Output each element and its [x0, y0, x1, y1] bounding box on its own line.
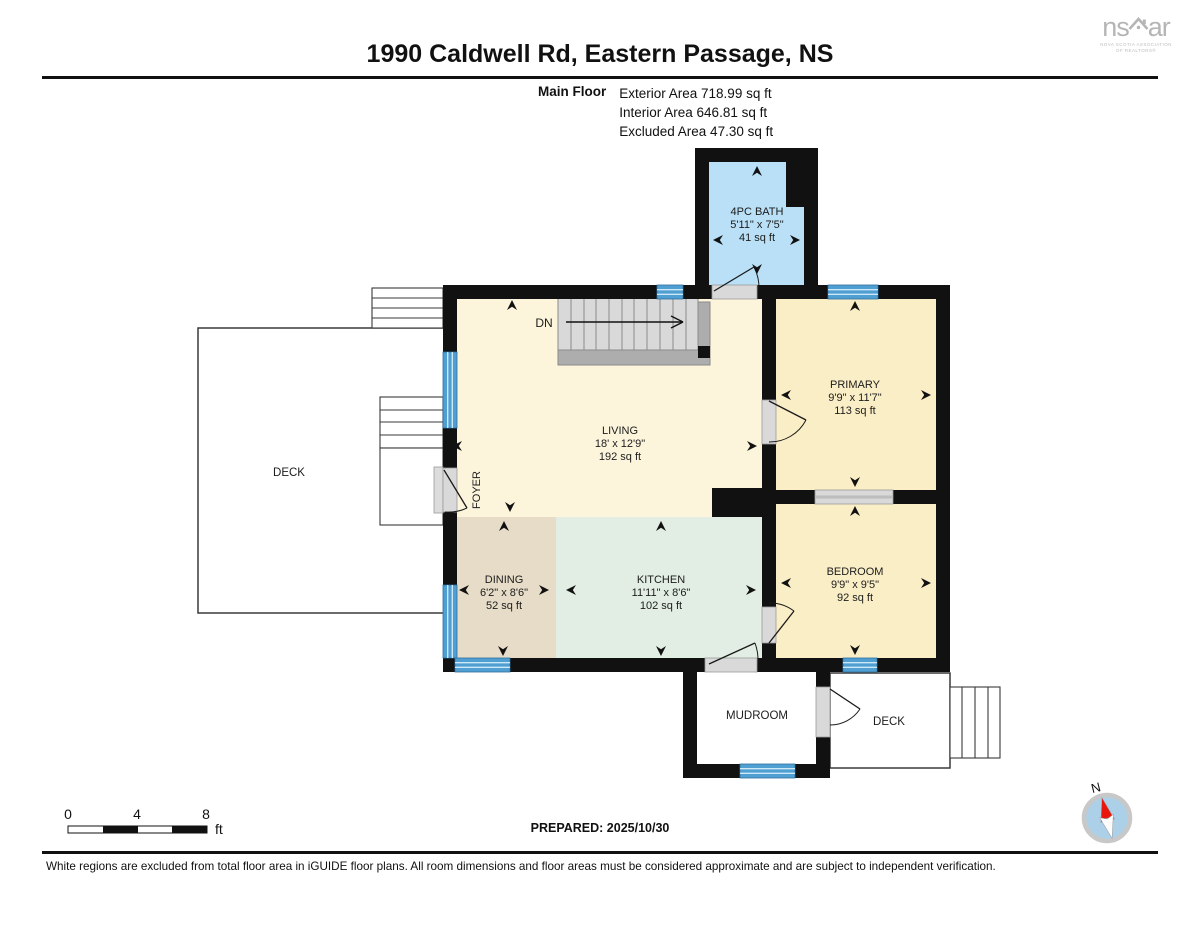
bath-name: 4PC BATH [731, 206, 784, 218]
sill-foyer-door [443, 468, 457, 512]
window-left-living [443, 352, 457, 428]
window-bedroom-bottom [843, 658, 877, 672]
footer-divider [42, 851, 1158, 854]
bedroom-dims: 9'9" x 9'5" [831, 579, 879, 591]
kitchen-area: 102 sq ft [640, 600, 682, 612]
deck-left [198, 288, 444, 613]
bath-area: 41 sq ft [739, 232, 775, 244]
deck-stairs-middle [380, 397, 443, 525]
dining-area: 52 sq ft [486, 600, 522, 612]
bedroom-name: BEDROOM [827, 566, 884, 578]
window-living-top [657, 285, 683, 299]
living-dims: 18' x 12'9" [595, 438, 645, 450]
kitchen-name: KITCHEN [637, 574, 685, 586]
dining-name: DINING [485, 574, 524, 586]
foyer-label: FOYER [471, 471, 483, 509]
floor-plan-drawing: DN [0, 0, 1200, 927]
deck-right-label: DECK [873, 716, 905, 728]
sill-kitchen-door [705, 658, 757, 672]
kitchen-dims: 11'11" x 8'6" [632, 587, 691, 599]
dining-dims: 6'2" x 8'6" [480, 587, 528, 599]
floor-plan-page: 1990 Caldwell Rd, Eastern Passage, NS ns… [0, 0, 1200, 927]
sill-bath-door [712, 285, 757, 299]
chimney-block [712, 488, 762, 517]
sill-mudroom-deck-door [816, 687, 830, 737]
sill-primary-door [762, 400, 776, 444]
bath-corner-notch [786, 162, 804, 207]
window-primary-top [828, 285, 878, 299]
bath-dims: 5'11" x 7'5" [730, 219, 783, 231]
scale-bar: 0 4 8 ft [64, 806, 223, 837]
staircase-down: DN [535, 295, 710, 365]
living-name: LIVING [602, 425, 638, 437]
deck-right [830, 673, 1000, 768]
window-left-dining [443, 585, 457, 658]
bedroom-area: 92 sq ft [837, 592, 873, 604]
stairs-dn-label: DN [535, 316, 552, 330]
scale-tick-8: 8 [202, 806, 210, 822]
prepared-date: PREPARED: 2025/10/30 [531, 821, 670, 835]
deck-left-label: DECK [273, 467, 305, 479]
primary-name: PRIMARY [830, 379, 881, 391]
compass-icon: N [1084, 779, 1130, 841]
scale-unit: ft [215, 821, 223, 837]
primary-area: 113 sq ft [834, 405, 875, 417]
scale-tick-0: 0 [64, 806, 72, 822]
disclaimer-text: White regions are excluded from total fl… [46, 860, 1156, 873]
scale-tick-4: 4 [133, 806, 141, 822]
north-label: N [1090, 779, 1103, 796]
sill-foyer-outside [434, 467, 443, 513]
deck-landing [380, 448, 443, 525]
deck-stairs-right [950, 687, 1000, 758]
living-area: 192 sq ft [599, 451, 641, 463]
window-dining-bottom [455, 658, 510, 672]
mudroom-name: MUDROOM [726, 710, 788, 722]
deck-stairs-top [372, 288, 443, 328]
window-mudroom-bottom [740, 764, 795, 778]
primary-dims: 9'9" x 11'7" [828, 392, 881, 404]
